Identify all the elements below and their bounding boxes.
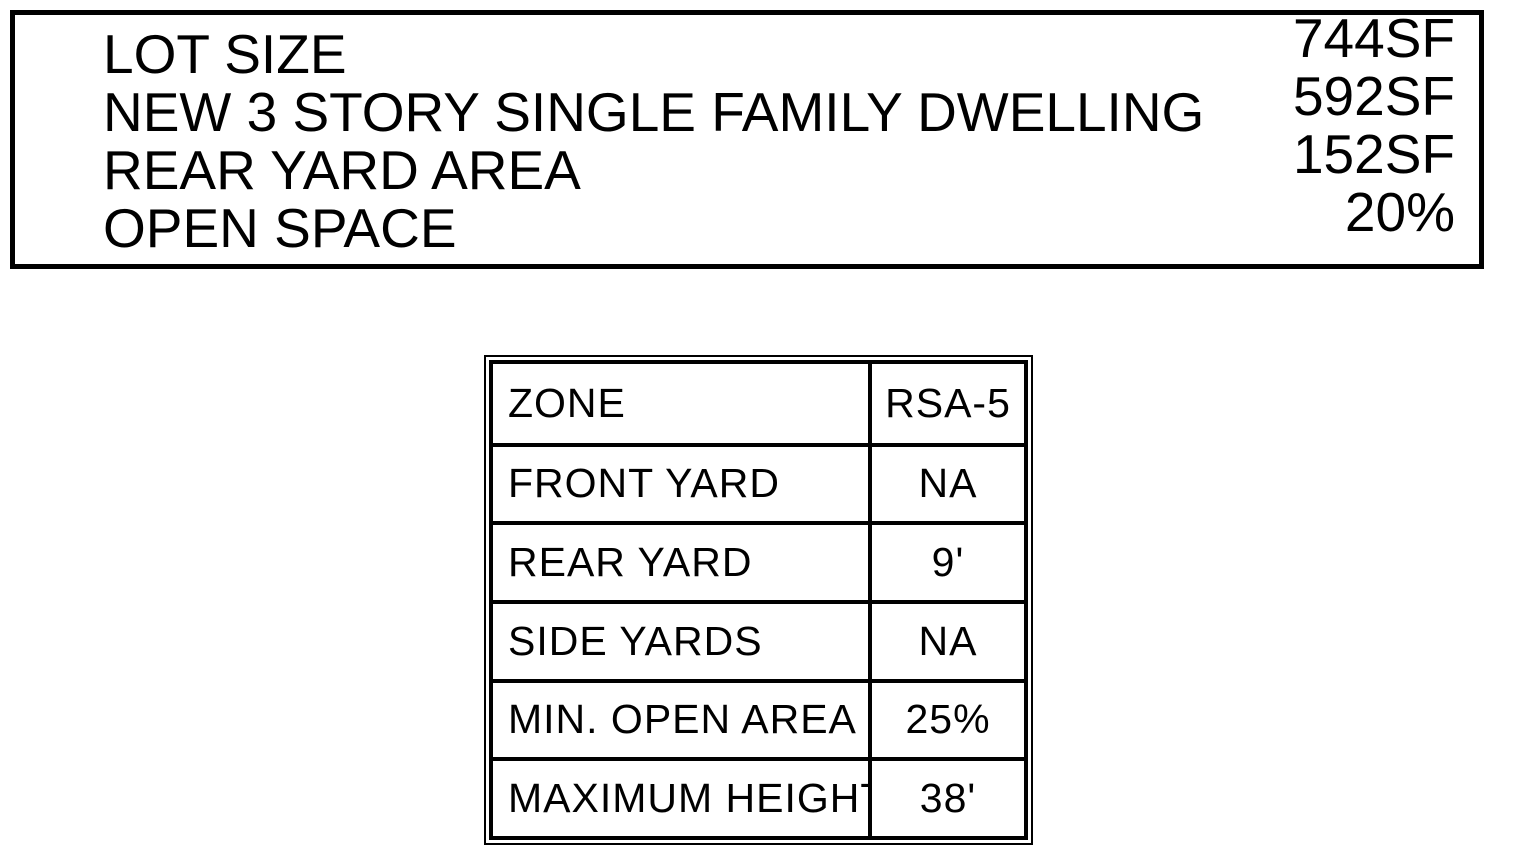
zoning-row-label: ZONE	[493, 364, 872, 443]
project-summary-box: LOT SIZE NEW 3 STORY SINGLE FAMILY DWELL…	[10, 10, 1484, 269]
summary-label-dwelling: NEW 3 STORY SINGLE FAMILY DWELLING	[103, 83, 1204, 141]
project-summary-labels: LOT SIZE NEW 3 STORY SINGLE FAMILY DWELL…	[103, 25, 1204, 257]
zoning-row-label: SIDE YARDS	[493, 604, 872, 679]
zoning-row-value: RSA-5	[872, 364, 1024, 443]
zoning-table-row-zone: ZONE RSA-5	[493, 364, 1024, 443]
zoning-row-label: MAXIMUM HEIGHT	[493, 761, 872, 836]
zoning-row-value: NA	[872, 447, 1024, 522]
summary-value-open-space: 20%	[1293, 183, 1455, 241]
zoning-row-label: FRONT YARD	[493, 447, 872, 522]
summary-label-open-space: OPEN SPACE	[103, 199, 1204, 257]
zoning-table-row-maximum-height: MAXIMUM HEIGHT 38'	[493, 757, 1024, 836]
zoning-table: ZONE RSA-5 FRONT YARD NA REAR YARD 9' SI…	[484, 355, 1033, 845]
zoning-row-value: 25%	[872, 683, 1024, 758]
zoning-row-value: 38'	[872, 761, 1024, 836]
summary-value-rear-yard: 152SF	[1293, 125, 1455, 183]
summary-value-dwelling: 592SF	[1293, 67, 1455, 125]
zoning-row-label: REAR YARD	[493, 525, 872, 600]
zoning-table-row-min-open-area: MIN. OPEN AREA 25%	[493, 679, 1024, 758]
zoning-row-value: NA	[872, 604, 1024, 679]
zoning-row-label: MIN. OPEN AREA	[493, 683, 872, 758]
summary-label-lot-size: LOT SIZE	[103, 25, 1204, 83]
zoning-table-row-side-yards: SIDE YARDS NA	[493, 600, 1024, 679]
summary-value-lot-size: 744SF	[1293, 9, 1455, 67]
zoning-table-inner-border: ZONE RSA-5 FRONT YARD NA REAR YARD 9' SI…	[489, 360, 1028, 840]
summary-label-rear-yard: REAR YARD AREA	[103, 141, 1204, 199]
zoning-row-value: 9'	[872, 525, 1024, 600]
zoning-table-row-front-yard: FRONT YARD NA	[493, 443, 1024, 522]
zoning-table-row-rear-yard: REAR YARD 9'	[493, 521, 1024, 600]
project-summary-values: 744SF 592SF 152SF 20%	[1293, 9, 1455, 241]
